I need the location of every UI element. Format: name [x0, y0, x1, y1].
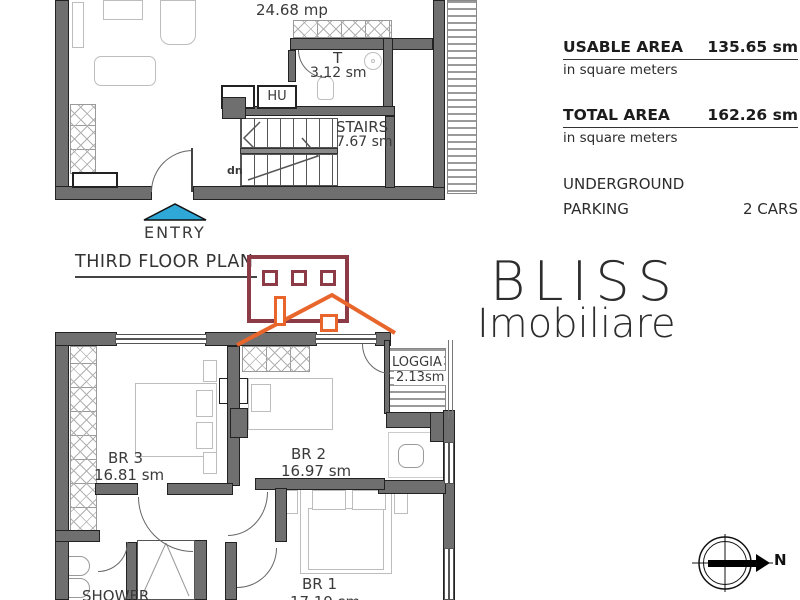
br2-area-label: 16.97 sm — [281, 463, 351, 480]
hall-door-arc — [237, 548, 277, 588]
wall-segment — [55, 0, 69, 200]
parking-row: PARKING 2 CARS — [563, 200, 798, 218]
wardrobe-hatch — [70, 346, 97, 532]
wall-segment — [167, 483, 233, 495]
wall-niche — [219, 378, 228, 404]
wall-segment — [193, 186, 445, 200]
radiator — [66, 556, 90, 576]
toilet-area-label: 3.12 sm — [310, 66, 367, 81]
wall-segment — [225, 542, 237, 600]
shower-door-arc — [98, 542, 128, 572]
window — [115, 334, 207, 344]
wall-segment — [55, 186, 152, 200]
usable-area-value: 135.65 sm — [707, 38, 798, 56]
washbasin-drain — [371, 59, 375, 63]
balcony-railing-hatch — [293, 20, 392, 38]
wall-segment — [290, 38, 433, 50]
loggia-area-label: 2.13sm — [394, 371, 446, 385]
stair-landing-block — [222, 97, 246, 119]
desk-chair — [398, 444, 424, 468]
logo-window-square — [262, 270, 278, 286]
logo-window-square — [320, 270, 336, 286]
plan-title: THIRD FLOOR PLAN — [75, 253, 253, 272]
parking-value: 2 CARS — [743, 200, 798, 218]
shower-label: SHOWER — [82, 588, 149, 600]
stairs-rail — [240, 148, 338, 154]
living-room-loveseat — [94, 56, 156, 86]
br1-door-arc — [228, 492, 268, 536]
hu-closet: HU — [257, 85, 297, 109]
wardrobe-hatch — [70, 104, 96, 174]
total-area-row: TOTAL AREA 162.26 sm — [563, 106, 798, 128]
usable-area-label: USABLE AREA — [563, 38, 683, 56]
hu-label: HU — [267, 90, 286, 104]
logo-brand-sub-text: Imobiliare — [477, 302, 676, 346]
wall-segment — [433, 0, 445, 188]
roof-hatch-strip — [447, 0, 477, 194]
br3-label: BR 3 — [108, 450, 143, 467]
entry-label: ENTRY — [144, 224, 206, 242]
wall-segment — [230, 408, 248, 438]
stairs-down-label: dn — [227, 165, 243, 177]
wall-segment — [288, 50, 296, 82]
cabinet — [72, 172, 118, 188]
wall-segment — [55, 332, 117, 346]
living-room-sofa — [160, 0, 196, 45]
shelf — [72, 2, 84, 48]
total-area-label: TOTAL AREA — [563, 106, 670, 124]
br1-bed-mattress — [308, 508, 384, 570]
logo-chimney — [274, 296, 286, 326]
br3-bed-pillow — [196, 422, 213, 449]
living-area-label: 24.68 mp — [256, 2, 328, 19]
nightstand — [203, 452, 217, 474]
total-area-unit-note: in square meters — [563, 130, 678, 146]
br2-label: BR 2 — [291, 446, 326, 463]
coffee-table — [103, 0, 143, 20]
logo-roof-window — [320, 314, 338, 332]
wall-segment — [55, 530, 100, 542]
parking-label-line1: UNDERGROUND — [563, 176, 684, 193]
logo-roof-icon — [230, 288, 400, 348]
entry-arrow-icon — [142, 202, 208, 222]
stairs-treads — [240, 154, 338, 186]
floorplan-image: HU 24.68 mp T 3.12 sm STAIRS 7.67 sm dn … — [0, 0, 800, 600]
total-area-value: 162.26 sm — [707, 106, 798, 124]
usable-area-unit-note: in square meters — [563, 62, 678, 78]
wall-segment — [193, 540, 207, 600]
compass-north-label: N — [774, 552, 787, 569]
plan-title-underline — [75, 276, 257, 278]
usable-area-row: USABLE AREA 135.65 sm — [563, 38, 798, 60]
loggia-door-arc — [362, 344, 390, 374]
wall-segment — [275, 488, 287, 542]
entry-door-leaf — [191, 148, 193, 192]
nightstand — [203, 360, 217, 382]
stairs-area-label: 7.67 sm — [336, 135, 393, 150]
br1-bed-pillow — [312, 490, 346, 510]
br3-bed-pillow — [196, 390, 213, 417]
logo-window-square — [291, 270, 307, 286]
wall-segment — [95, 483, 138, 495]
wall-niche — [239, 378, 248, 404]
loggia-rail-line — [448, 340, 453, 418]
br1-area-label: 17.19 sm — [290, 594, 360, 600]
entry-door-arc — [151, 150, 193, 192]
window — [444, 548, 454, 600]
parking-label-line2: PARKING — [563, 200, 629, 218]
loggia-label: LOGGIA — [390, 356, 444, 370]
wall-segment — [383, 38, 393, 114]
br1-label: BR 1 — [302, 576, 337, 593]
window — [444, 442, 454, 484]
wall-segment — [378, 480, 446, 494]
br2-bed-pillow — [251, 384, 271, 412]
br3-area-label: 16.81 sm — [94, 467, 164, 484]
stairs-treads — [240, 118, 338, 148]
wardrobe-hatch — [242, 346, 310, 372]
wall-segment — [55, 332, 69, 600]
